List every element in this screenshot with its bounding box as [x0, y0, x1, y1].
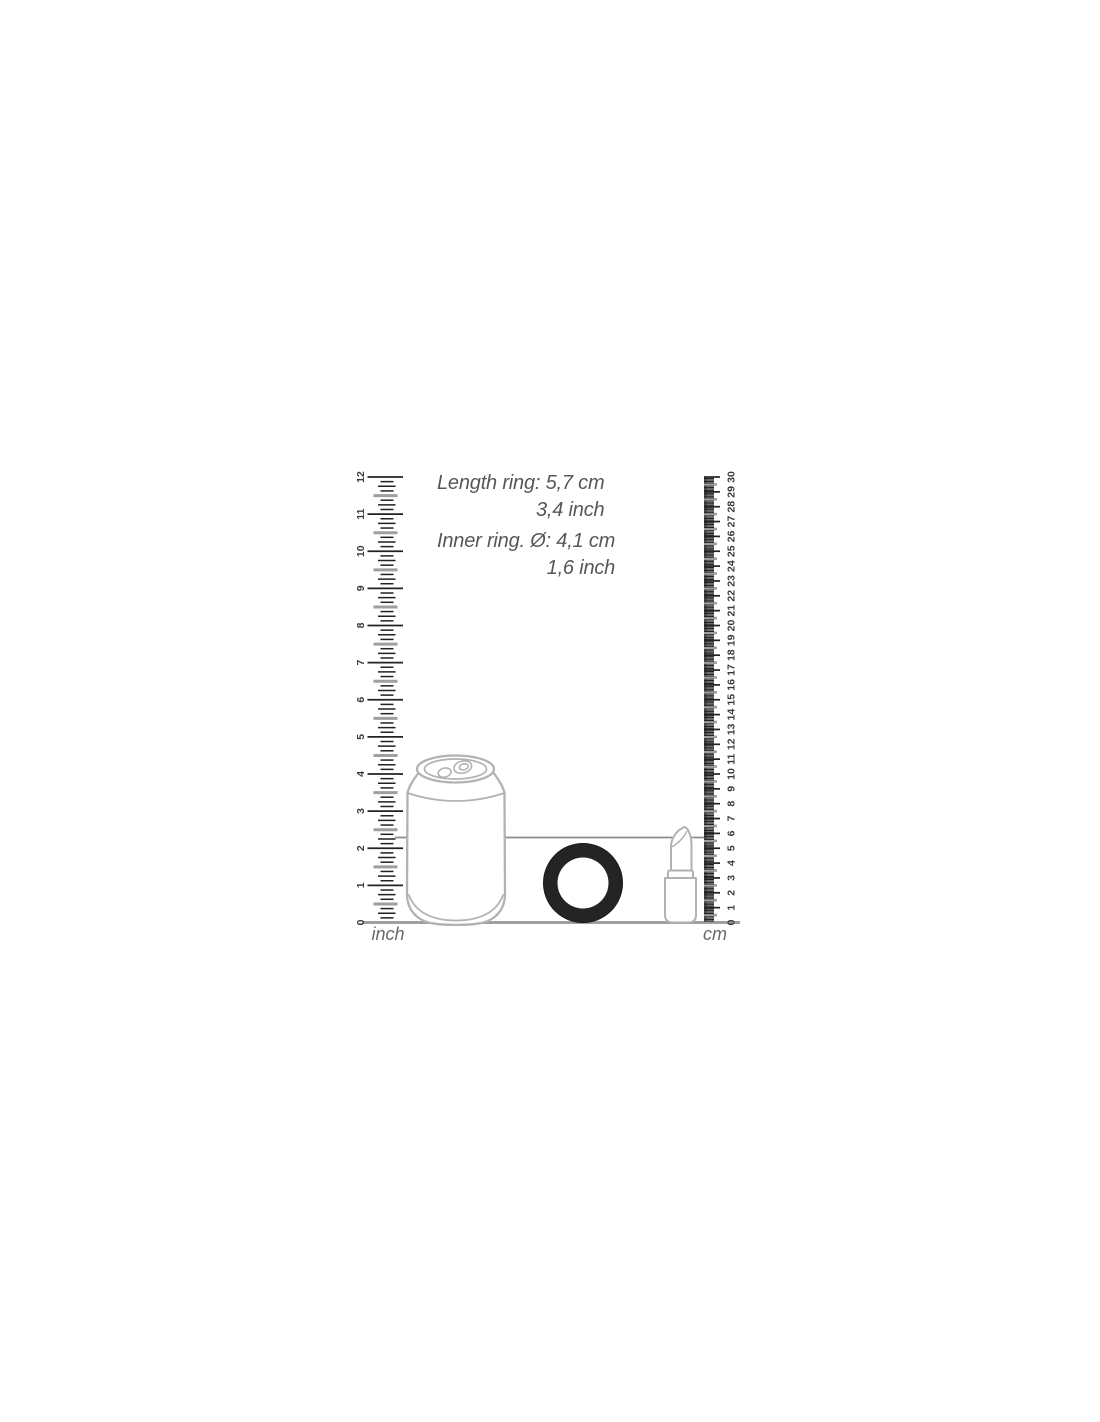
- length-ring-metric: Length ring: 5,7 cm: [437, 470, 604, 497]
- ruler-number: 12: [726, 738, 738, 750]
- ruler-number: 1: [355, 882, 367, 888]
- ruler-number: 9: [355, 585, 367, 591]
- ruler-number: 28: [726, 501, 738, 513]
- ruler-number: 27: [726, 516, 738, 528]
- cm-ruler: 0123456789101112131415161718192021222324…: [704, 471, 738, 925]
- inner-ring-metric: Inner ring. Ø: 4,1 cm: [437, 528, 615, 555]
- ruler-number: 4: [726, 860, 738, 866]
- can-body: [407, 772, 505, 925]
- ruler-number: 1: [726, 905, 738, 911]
- ruler-number: 19: [726, 634, 738, 646]
- ruler-number: 14: [726, 709, 738, 721]
- ruler-number: 5: [355, 734, 367, 740]
- ruler-number: 16: [726, 679, 738, 691]
- product-size-diagram: 0123456789101112 01234567891011121314151…: [0, 0, 1100, 1422]
- ruler-number: 15: [726, 694, 738, 706]
- ruler-number: 25: [726, 545, 738, 557]
- ruler-number: 6: [726, 830, 738, 836]
- inch-ruler: 0123456789101112: [355, 471, 410, 925]
- ruler-number: 17: [726, 664, 738, 676]
- lipstick-base: [665, 878, 696, 923]
- ruler-number: 20: [726, 620, 738, 632]
- ruler-number: 2: [355, 845, 367, 851]
- ruler-number: 10: [355, 545, 367, 557]
- length-ring-annotation: Length ring: 5,7 cm 3,4 inch: [437, 470, 604, 524]
- ruler-number: 7: [355, 660, 367, 666]
- ruler-number: 29: [726, 486, 738, 498]
- ruler-number: 24: [726, 560, 738, 572]
- inner-ring-annotation: Inner ring. Ø: 4,1 cm 1,6 inch: [437, 528, 615, 582]
- ruler-number: 30: [726, 471, 738, 483]
- ruler-number: 4: [355, 771, 367, 777]
- ruler-number: 8: [726, 801, 738, 807]
- cm-ruler-unit-label: cm: [699, 924, 731, 945]
- ruler-number: 21: [726, 605, 738, 617]
- ruler-number: 18: [726, 649, 738, 661]
- ruler-number: 9: [726, 786, 738, 792]
- ruler-number: 12: [355, 471, 367, 483]
- ruler-number: 23: [726, 575, 738, 587]
- lipstick-bullet: [671, 827, 692, 870]
- diagram-canvas: 0123456789101112 01234567891011121314151…: [0, 0, 1100, 1422]
- ring-inner-hole: [558, 858, 609, 909]
- inch-ruler-unit-label: inch: [366, 924, 410, 945]
- black-ring-product: [544, 844, 623, 923]
- ruler-number: 11: [726, 753, 738, 764]
- soda-can-illustration: [407, 756, 505, 925]
- ruler-number: 3: [355, 808, 367, 814]
- ruler-number: 3: [726, 875, 738, 881]
- lipstick-illustration: [665, 827, 696, 922]
- inner-ring-imperial: 1,6 inch: [437, 555, 615, 582]
- ruler-number: 26: [726, 530, 738, 542]
- ruler-number: 13: [726, 723, 738, 735]
- lipstick-collar: [668, 871, 693, 879]
- ruler-number: 22: [726, 590, 738, 602]
- ruler-number: 10: [726, 768, 738, 780]
- ruler-number: 8: [355, 622, 367, 628]
- ruler-number: 7: [726, 815, 738, 821]
- ruler-number: 2: [726, 890, 738, 896]
- ruler-number: 5: [726, 845, 738, 851]
- ruler-number: 11: [355, 508, 367, 519]
- ruler-number: 6: [355, 697, 367, 703]
- length-ring-imperial: 3,4 inch: [437, 497, 604, 524]
